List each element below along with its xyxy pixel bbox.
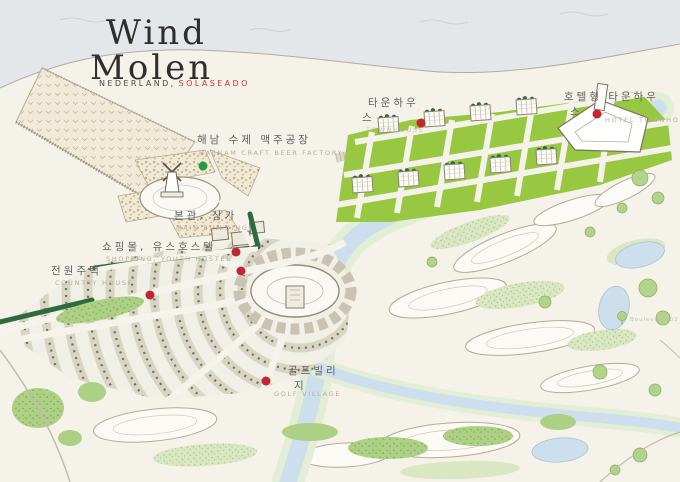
map-subtitle: NEDERLAND,SOLASEADO (99, 79, 250, 88)
title-line1: Wind (106, 16, 213, 50)
marker-hotel-townhouse (593, 110, 602, 119)
illustrated-masterplan-map: Wind Molen NEDERLAND,SOLASEADO 해남 수제 맥주공… (0, 0, 680, 482)
subtitle-country: NEDERLAND, (99, 79, 176, 88)
subtitle-brand: SOLASEADO (179, 79, 250, 88)
marker-main-building (232, 248, 241, 257)
marker-townhouse (417, 119, 426, 128)
marker-shopping-youth-hostel (237, 267, 246, 276)
marker-golf-village (262, 377, 271, 386)
marker-beer-factory (199, 162, 208, 171)
map-title: Wind Molen (90, 16, 213, 86)
marker-country-house (146, 291, 155, 300)
